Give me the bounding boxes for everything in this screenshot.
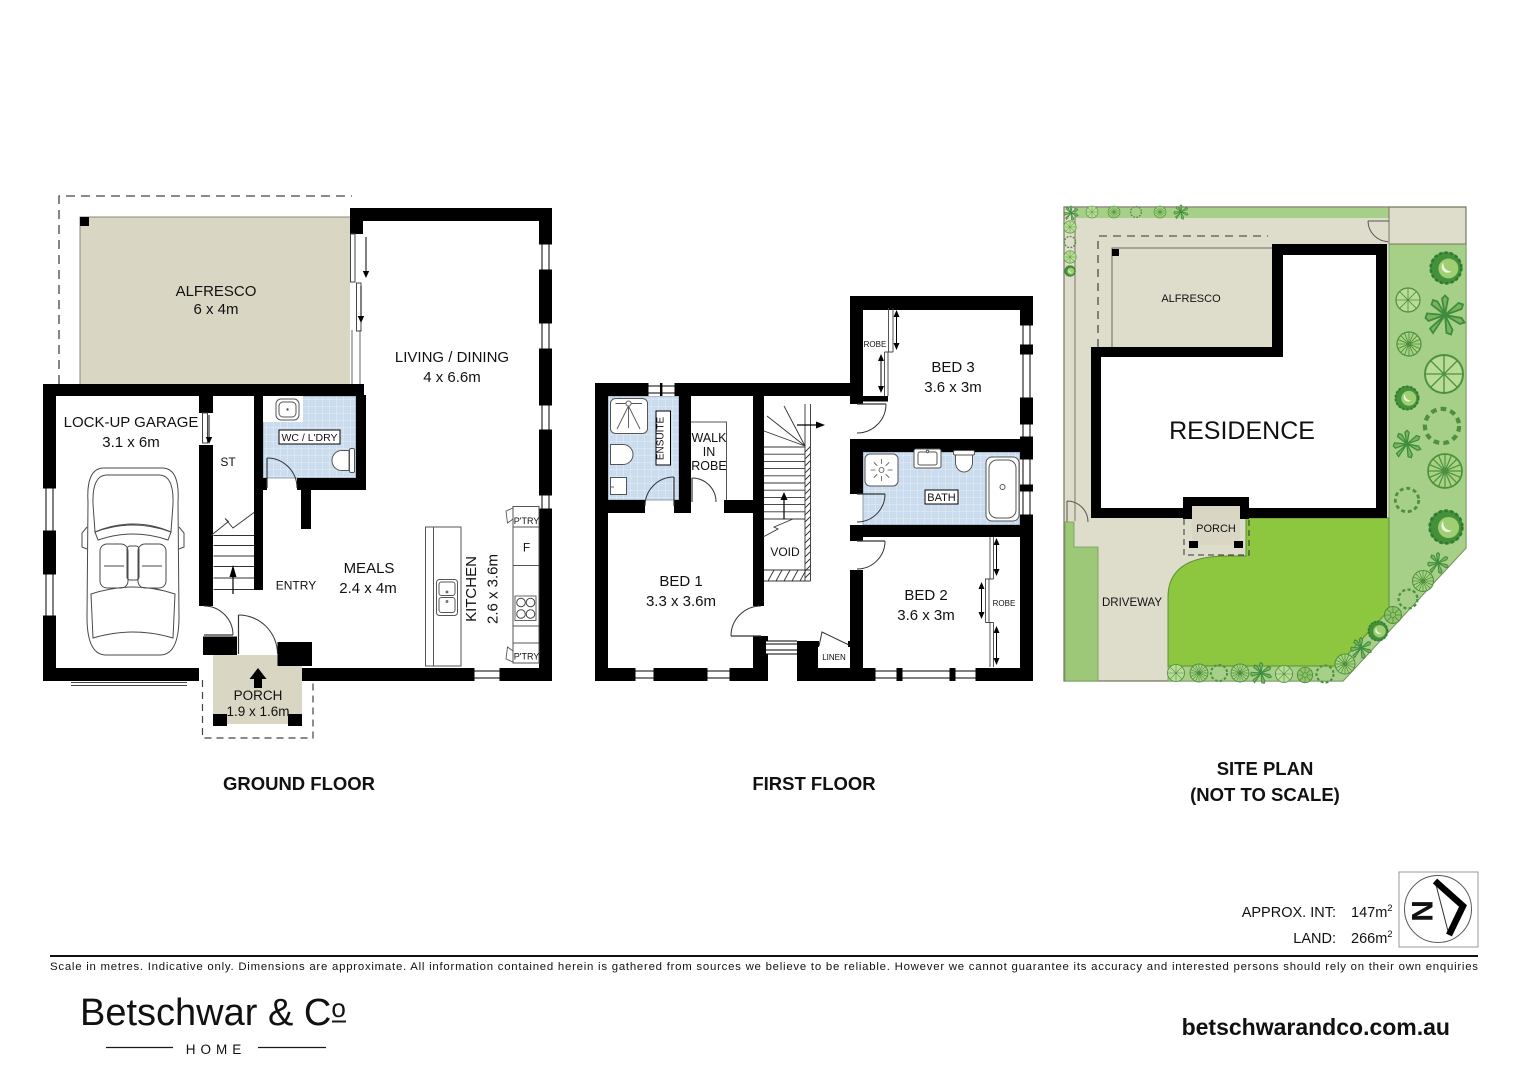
svg-text:147m2: 147m2 (1351, 903, 1393, 921)
svg-text:2.4 x 4m: 2.4 x 4m (339, 580, 397, 597)
svg-text:LINEN: LINEN (822, 653, 846, 662)
svg-text:GROUND FLOOR: GROUND FLOOR (223, 773, 375, 794)
svg-text:3.6 x 3m: 3.6 x 3m (924, 379, 982, 396)
svg-text:BED 3: BED 3 (931, 359, 974, 376)
svg-text:3.3 x 3.6m: 3.3 x 3.6m (646, 593, 716, 610)
svg-text:ENTRY: ENTRY (276, 579, 316, 593)
svg-text:ST: ST (220, 455, 236, 469)
svg-text:MEALS: MEALS (344, 560, 395, 577)
svg-text:ROBE: ROBE (691, 459, 726, 473)
svg-text:LAND:: LAND: (1293, 931, 1336, 947)
svg-text:ENSUITE: ENSUITE (656, 417, 667, 461)
svg-text:LIVING / DINING: LIVING / DINING (395, 349, 509, 366)
svg-text:3.6 x 3m: 3.6 x 3m (897, 607, 955, 624)
svg-text:ROBE: ROBE (864, 340, 887, 349)
svg-text:4 x 6.6m: 4 x 6.6m (423, 369, 481, 386)
svg-text:F: F (523, 541, 530, 555)
svg-text:ALFRESCO: ALFRESCO (1161, 293, 1221, 305)
svg-text:RESIDENCE: RESIDENCE (1169, 417, 1315, 445)
svg-text:PORCH: PORCH (234, 688, 283, 703)
svg-text:Betschwar & Co: Betschwar & Co (80, 992, 346, 1034)
svg-text:KITCHEN: KITCHEN (463, 556, 480, 622)
svg-text:PORCH: PORCH (1196, 523, 1236, 535)
svg-text:betschwarandco.com.au: betschwarandco.com.au (1182, 1014, 1450, 1040)
svg-text:3.1 x 6m: 3.1 x 6m (102, 434, 160, 451)
svg-text:P'TRY: P'TRY (514, 652, 540, 662)
svg-text:2.6 x 3.6m: 2.6 x 3.6m (485, 554, 502, 624)
svg-text:1.9 x 1.6m: 1.9 x 1.6m (226, 704, 289, 719)
svg-text:FIRST FLOOR: FIRST FLOOR (752, 773, 875, 794)
svg-text:BATH: BATH (927, 492, 956, 504)
svg-text:(NOT TO SCALE): (NOT TO SCALE) (1190, 784, 1340, 805)
svg-text:BED 2: BED 2 (904, 587, 947, 604)
svg-text:ROBE: ROBE (993, 599, 1016, 608)
svg-text:P'TRY: P'TRY (514, 516, 540, 526)
svg-text:WALK: WALK (692, 431, 728, 445)
svg-text:6 x 4m: 6 x 4m (193, 301, 238, 318)
svg-text:Scale in metres. Indicative on: Scale in metres. Indicative only. Dimens… (50, 961, 1478, 973)
svg-text:BED 1: BED 1 (659, 573, 702, 590)
svg-text:SITE PLAN: SITE PLAN (1217, 758, 1314, 779)
svg-text:N: N (1405, 900, 1438, 922)
svg-text:APPROX. INT:: APPROX. INT: (1242, 905, 1336, 921)
svg-text:WC / L'DRY: WC / L'DRY (281, 432, 337, 444)
svg-text:ALFRESCO: ALFRESCO (176, 283, 257, 300)
svg-text:266m2: 266m2 (1351, 929, 1393, 947)
svg-text:IN: IN (703, 445, 716, 459)
svg-text:HOME: HOME (186, 1042, 247, 1057)
svg-text:LOCK-UP GARAGE: LOCK-UP GARAGE (64, 414, 199, 431)
svg-text:DRIVEWAY: DRIVEWAY (1102, 597, 1162, 609)
svg-text:VOID: VOID (770, 545, 800, 559)
